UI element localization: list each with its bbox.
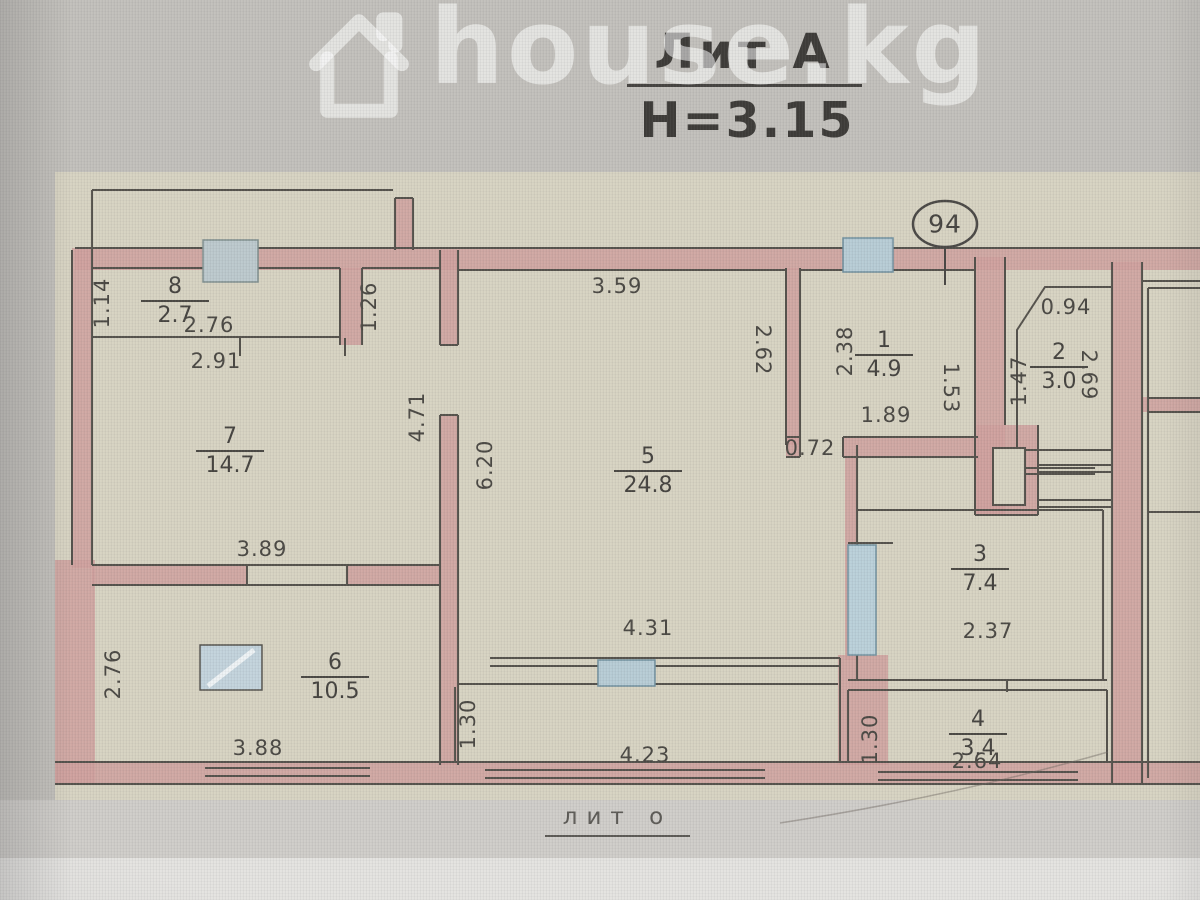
floor-plan-photo: Лит А H=3.15 94 8 2.7 7 14.7 6 10.5 5 24… <box>0 0 1200 900</box>
dim-1.89: 1.89 <box>861 403 912 427</box>
dim-2.64: 2.64 <box>952 749 1003 773</box>
dim-2.69: 2.69 <box>1077 350 1101 401</box>
dim-2.91: 2.91 <box>191 349 242 373</box>
dim-0.72: 0.72 <box>785 436 836 460</box>
dim-3.88: 3.88 <box>233 736 284 760</box>
room-label-7: 7 14.7 <box>196 424 264 478</box>
dim-2.37: 2.37 <box>963 619 1014 643</box>
room-label-3: 3 7.4 <box>951 542 1009 596</box>
dim-3.89: 3.89 <box>237 537 288 561</box>
dim-4.71: 4.71 <box>405 392 429 443</box>
dim-1.47: 1.47 <box>1007 356 1031 407</box>
title-height: H=3.15 <box>622 92 872 149</box>
room-area: 24.8 <box>614 472 682 498</box>
dim-2.62: 2.62 <box>751 325 775 376</box>
room-number: 7 <box>196 424 264 452</box>
room-number: 3 <box>951 542 1009 570</box>
footer-liter: лит о <box>545 804 690 837</box>
title-liter: Лит А <box>627 24 862 87</box>
room-number: 4 <box>949 707 1007 735</box>
plan-labels: Лит А H=3.15 94 8 2.7 7 14.7 6 10.5 5 24… <box>0 0 1200 900</box>
room-area: 10.5 <box>301 678 369 704</box>
room-number: 5 <box>614 444 682 472</box>
dim-1.53: 1.53 <box>939 363 963 414</box>
room-label-1: 1 4.9 <box>855 328 913 382</box>
dim-4.23: 4.23 <box>620 743 671 767</box>
dim-0.94: 0.94 <box>1041 295 1092 319</box>
dim-1.14: 1.14 <box>90 278 114 329</box>
dim-2.76-room6: 2.76 <box>101 649 125 700</box>
room-area: 7.4 <box>951 570 1009 596</box>
dim-4.31: 4.31 <box>623 616 674 640</box>
dim-1.30-balcony: 1.30 <box>456 699 480 750</box>
dim-1.26: 1.26 <box>357 282 381 333</box>
dim-6.20: 6.20 <box>473 440 497 491</box>
room-number: 8 <box>141 274 209 302</box>
room-area: 4.9 <box>855 356 913 382</box>
room-area: 14.7 <box>196 452 264 478</box>
unit-number: 94 <box>928 210 962 239</box>
dim-2.76-room8: 2.76 <box>184 313 235 337</box>
dim-3.59: 3.59 <box>592 274 643 298</box>
dim-1.30-room4: 1.30 <box>858 714 882 765</box>
room-number: 1 <box>855 328 913 356</box>
room-label-6: 6 10.5 <box>301 650 369 704</box>
dim-2.38: 2.38 <box>833 326 857 377</box>
room-label-5: 5 24.8 <box>614 444 682 498</box>
room-number: 6 <box>301 650 369 678</box>
